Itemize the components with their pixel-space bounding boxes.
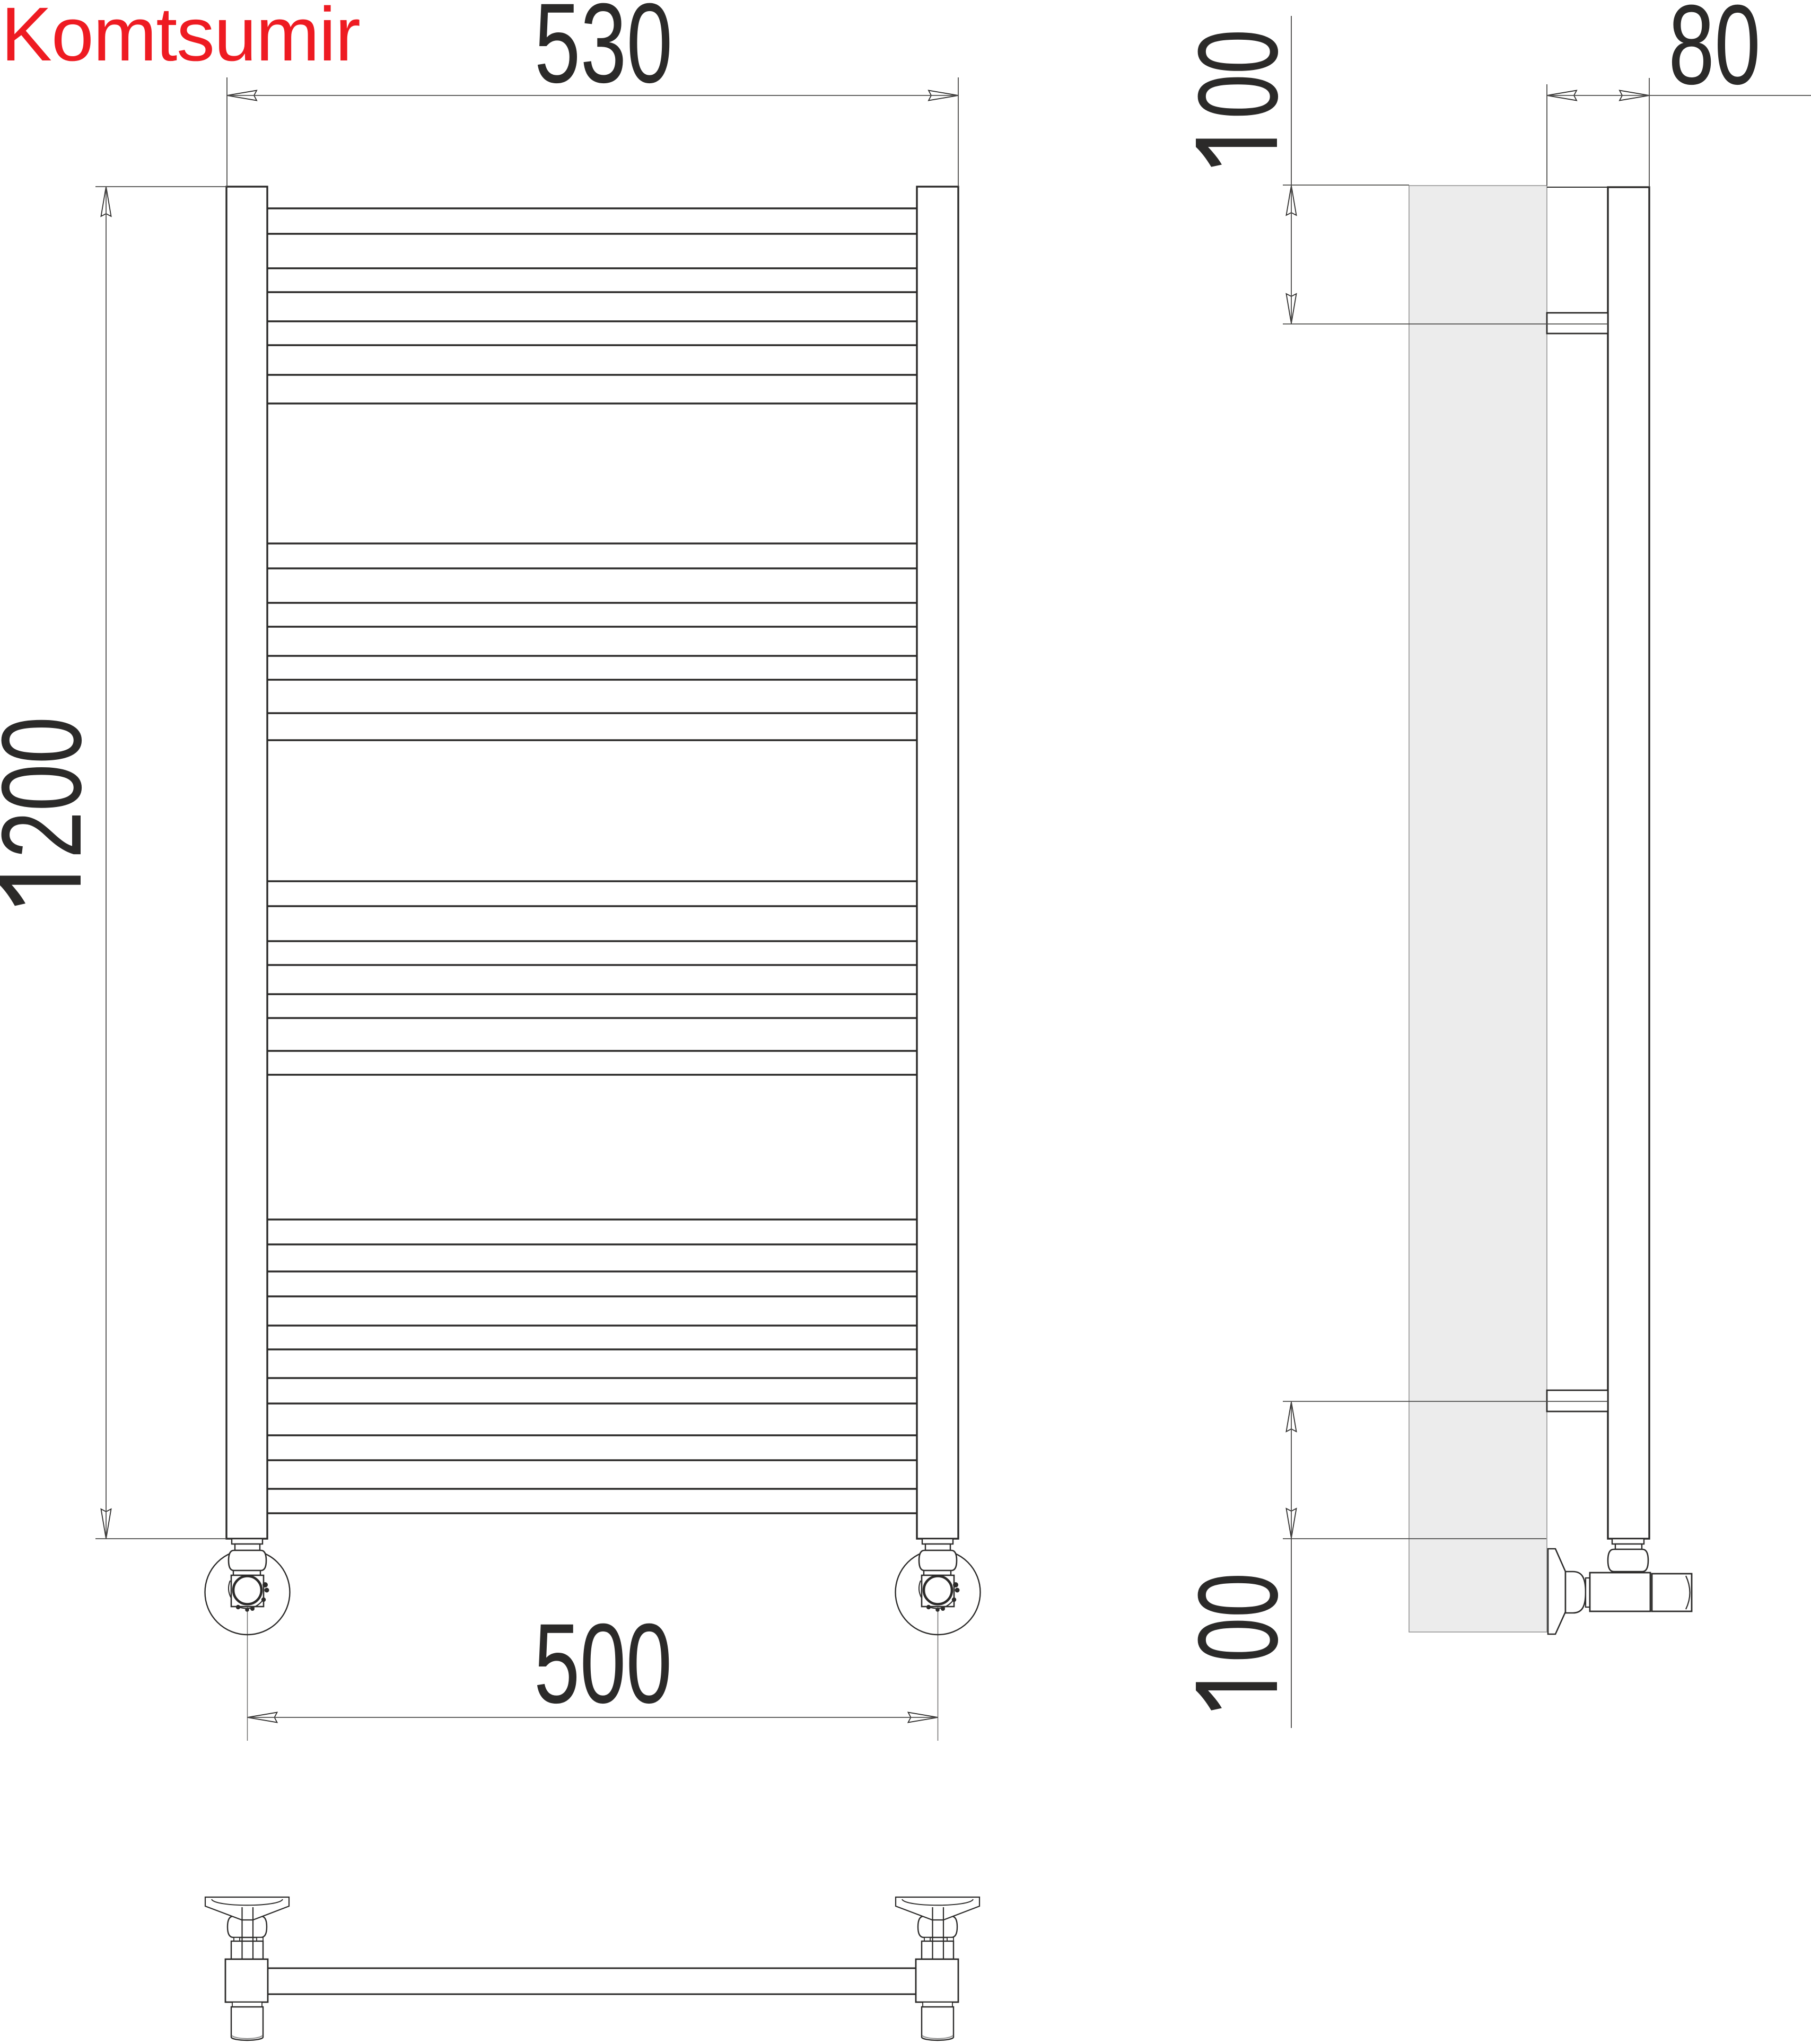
svg-text:Komtsumir: Komtsumir: [1, 0, 361, 77]
svg-text:00: 00: [1175, 29, 1301, 119]
svg-text:00: 00: [1175, 1573, 1301, 1662]
svg-text:200: 200: [0, 716, 105, 858]
svg-text:500: 500: [534, 1600, 672, 1727]
svg-text:80: 80: [1668, 0, 1761, 108]
svg-text:530: 530: [535, 0, 673, 107]
